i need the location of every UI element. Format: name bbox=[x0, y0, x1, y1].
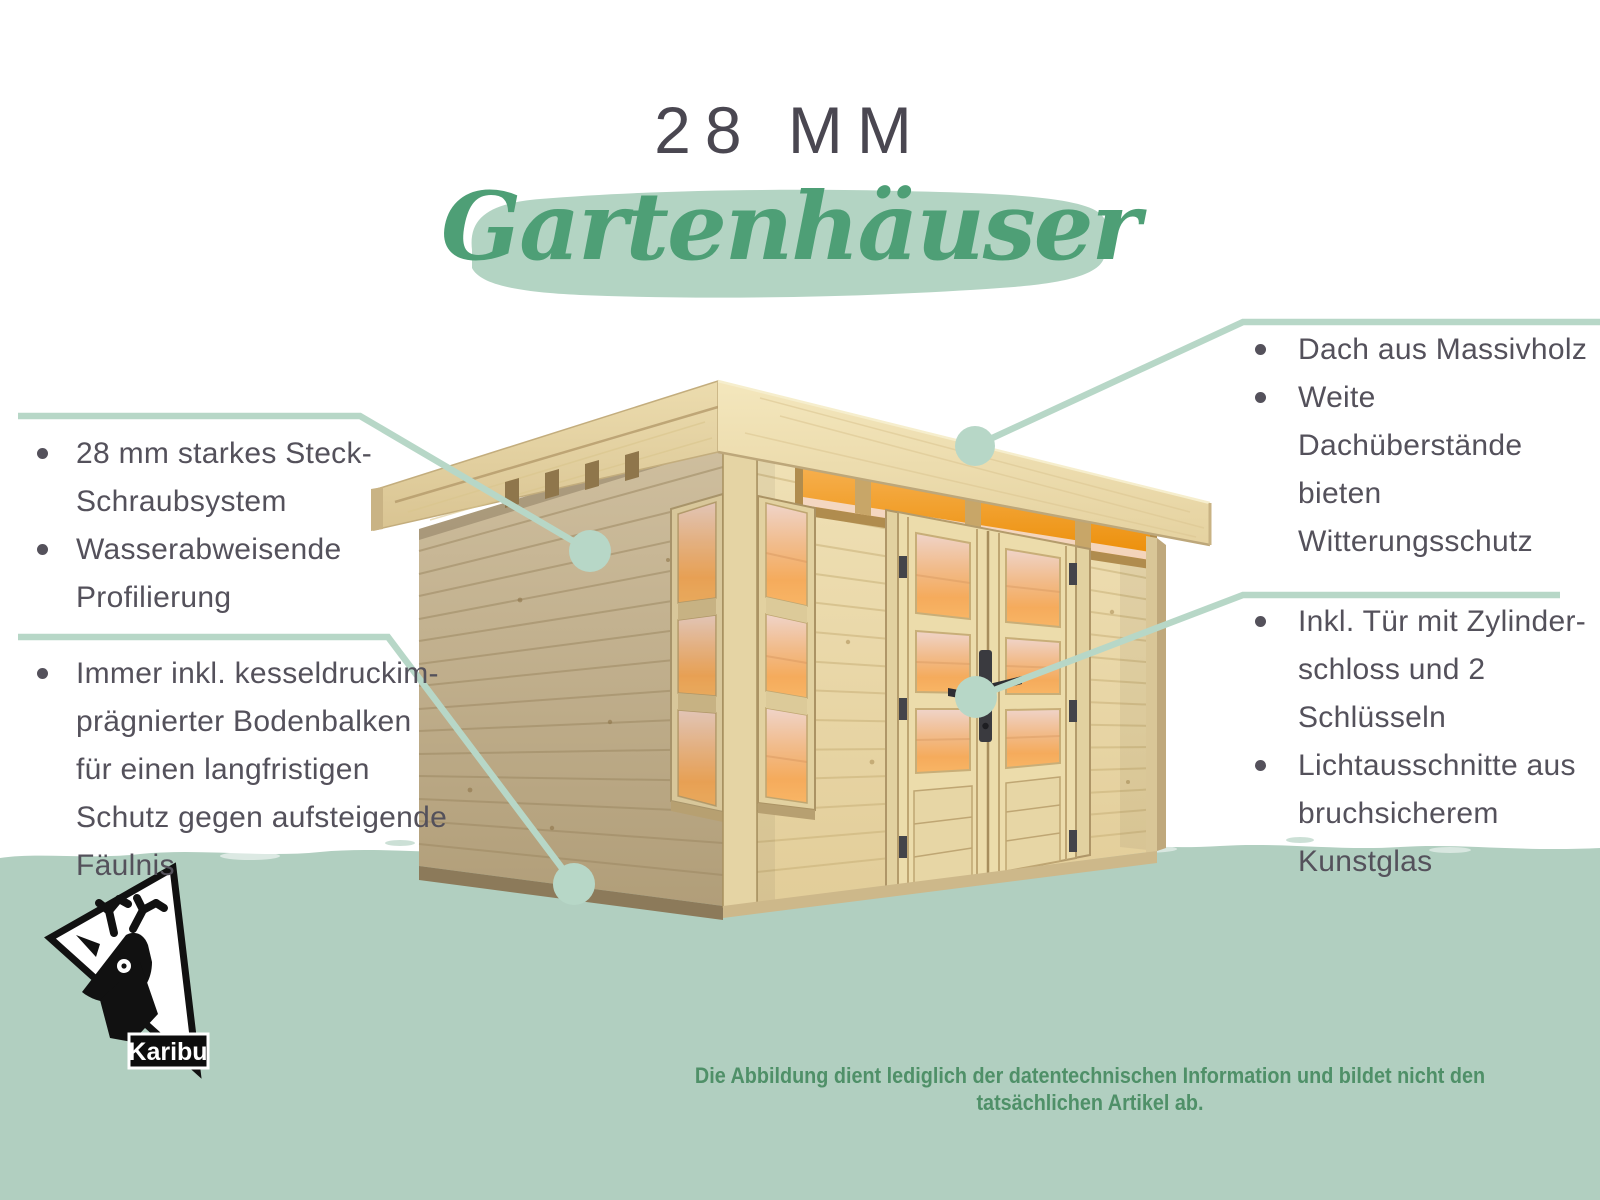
bullet-dot bbox=[1255, 344, 1266, 355]
script-title: Gartenhäuser bbox=[340, 172, 1240, 282]
garden-house-illustration bbox=[371, 381, 1210, 920]
page-title: 28 MM bbox=[420, 92, 1160, 168]
disclaimer-text: Die Abbildung dient lediglich der datent… bbox=[659, 1062, 1521, 1116]
callout-wall-system: 28 mm starkes Steck- Schraubsystem Wasse… bbox=[8, 430, 478, 622]
bullet-dot bbox=[37, 448, 48, 459]
bullet-dot bbox=[37, 544, 48, 555]
dot-roof bbox=[955, 426, 995, 466]
front-tall-window bbox=[758, 496, 815, 820]
callout-text: 28 mm starkes Steck- Schraubsystem bbox=[76, 430, 478, 526]
logo-wordmark: Karibu bbox=[128, 1038, 207, 1066]
list-item: Immer inkl. kesseldruckim- prägnierter B… bbox=[8, 650, 478, 890]
dot-wall bbox=[569, 530, 611, 572]
callout-text: Dach aus Massivholz bbox=[1298, 326, 1600, 374]
bullet-dot bbox=[1255, 392, 1266, 403]
list-item: Weite Dachüberstände bieten Witterungssc… bbox=[1222, 374, 1600, 566]
list-item: Dach aus Massivholz bbox=[1222, 326, 1600, 374]
callout-text: Wasserabweisende Profilierung bbox=[76, 526, 478, 622]
bullet-dot bbox=[37, 668, 48, 679]
list-item: 28 mm starkes Steck- Schraubsystem bbox=[8, 430, 478, 526]
bullet-dot bbox=[1255, 760, 1266, 771]
callout-text: Lichtausschnitte aus bruchsicherem Kunst… bbox=[1298, 742, 1600, 886]
callout-text: Immer inkl. kesseldruckim- prägnierter B… bbox=[76, 650, 478, 890]
callout-roof: Dach aus Massivholz Weite Dachüberstände… bbox=[1222, 326, 1600, 566]
callout-floor-beams: Immer inkl. kesseldruckim- prägnierter B… bbox=[8, 650, 478, 890]
callout-door: Inkl. Tür mit Zylinder- schloss und 2 Sc… bbox=[1222, 598, 1600, 886]
list-item: Inkl. Tür mit Zylinder- schloss und 2 Sc… bbox=[1222, 598, 1600, 742]
bullet-dot bbox=[1255, 616, 1266, 627]
callout-text: Weite Dachüberstände bieten Witterungssc… bbox=[1298, 374, 1600, 566]
dot-door bbox=[955, 676, 997, 718]
dot-floor bbox=[553, 863, 595, 905]
list-item: Wasserabweisende Profilierung bbox=[8, 526, 478, 622]
list-item: Lichtausschnitte aus bruchsicherem Kunst… bbox=[1222, 742, 1600, 886]
right-edge-trim bbox=[1146, 536, 1166, 853]
corner-trim-board bbox=[723, 434, 757, 907]
infographic-page: Karibu 28 MM Gartenhäuser 28 mm starkes … bbox=[0, 0, 1600, 1200]
side-wall-window bbox=[671, 494, 723, 822]
callout-text: Inkl. Tür mit Zylinder- schloss und 2 Sc… bbox=[1298, 598, 1600, 742]
